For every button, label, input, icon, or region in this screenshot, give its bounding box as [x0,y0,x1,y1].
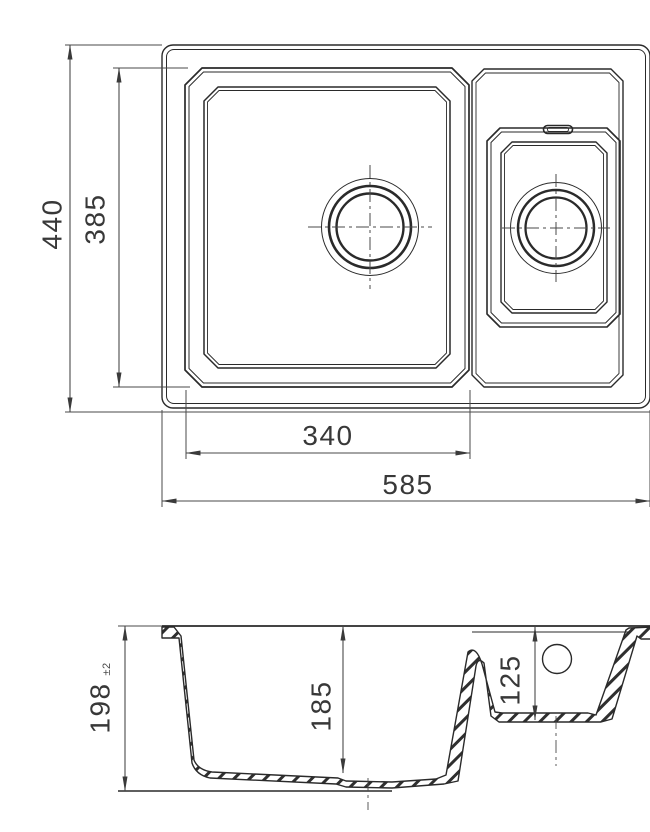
dim-label-height-tolerance: ±2 [101,662,113,675]
dim-label-overall-width: 585 [382,469,433,500]
dim-overall-width: 585 [162,410,650,507]
dim-label-main-bowl-inner-depth: 185 [305,680,336,731]
dim-label-second-bowl-inner-depth: 125 [494,654,525,705]
dim-second-bowl-inner-depth: 125 [494,627,535,720]
dim-main-bowl-inner-depth: 185 [305,626,343,773]
dim-label-main-bowl-width: 340 [302,420,353,451]
dim-main-bowl-width: 340 [186,390,470,459]
dim-label-overall-height: 198 [84,682,115,733]
dim-main-bowl-depth: 385 [79,68,190,387]
secondary-bowl-section [472,69,623,387]
overflow-hole [543,645,572,674]
dim-label-main-bowl-depth: 385 [79,193,110,244]
dim-label-overall-depth: 440 [40,198,67,249]
sink-technical-drawing: 440 385 340 585 [40,16,650,816]
dim-overall-height: 198 ±2 [84,626,162,791]
secondary-drain [502,174,610,282]
shell-cross-section [162,627,650,788]
plan-view: 440 385 340 585 [40,45,650,507]
main-drain [308,165,432,289]
section-view: 198 ±2 185 125 [84,626,650,810]
main-bowl [185,68,469,387]
